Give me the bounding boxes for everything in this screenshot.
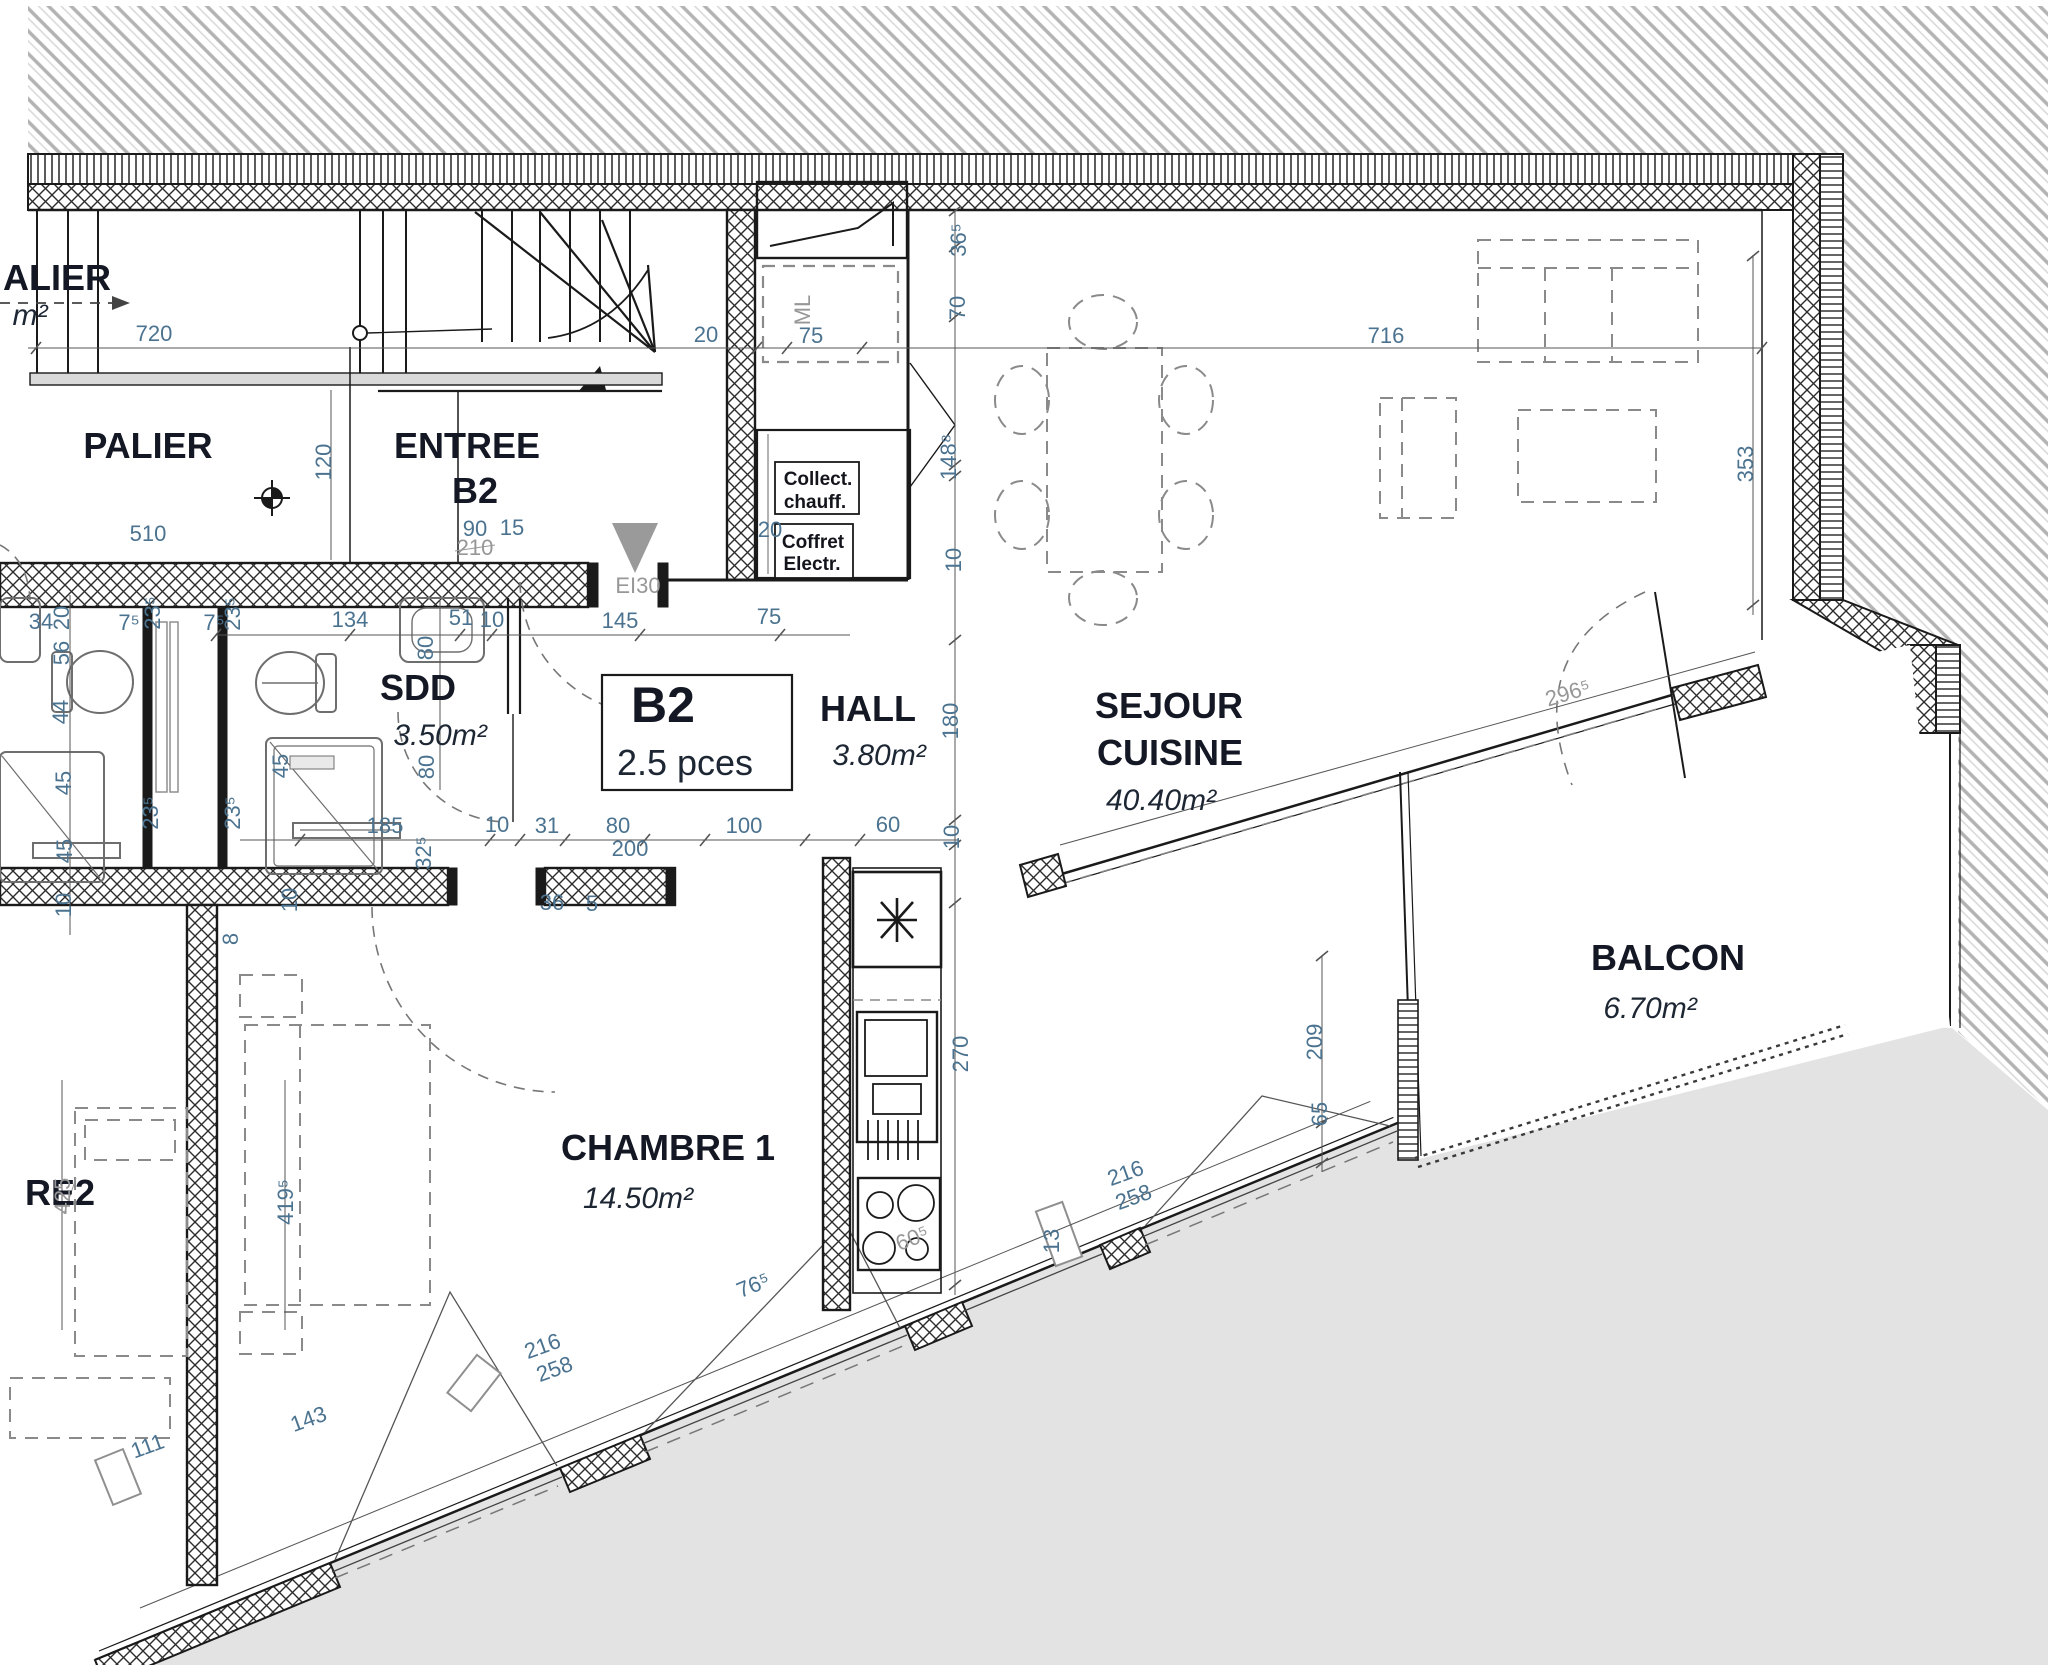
sejour-label-2: CUISINE: [1097, 732, 1243, 773]
balcon-area: 6.70m²: [1603, 992, 1697, 1025]
dim-185: 185: [367, 813, 404, 838]
dim-134: 134: [332, 607, 369, 632]
dim-765: 76⁵: [733, 1267, 774, 1303]
outside-ground: [95, 1025, 2048, 1665]
entree-unit: B2: [452, 470, 498, 511]
oven-vent-lines: [868, 1120, 918, 1160]
unit-box-pces: 2.5 pces: [617, 742, 753, 783]
dim-210: 210: [457, 535, 494, 560]
entree-label: ENTREE: [394, 425, 540, 466]
ml-label: ML: [790, 295, 815, 326]
adjacent-palier-area: m²: [13, 299, 49, 332]
hall-area: 3.80m²: [832, 739, 926, 772]
dim-13: 13: [1039, 1229, 1064, 1253]
dim-20-top: 20: [694, 322, 718, 347]
cab-collect-2: chauff.: [784, 492, 846, 513]
sejour-area: 40.40m²: [1106, 784, 1217, 817]
dim-120: 120: [311, 444, 336, 481]
dim-365: 36⁵: [946, 223, 971, 257]
dim-10-a: 10: [941, 548, 966, 572]
kitchen-appliances: [853, 868, 941, 1293]
dim-200: 200: [612, 836, 649, 861]
oven-unit: [857, 1012, 937, 1142]
dim-510: 510: [130, 521, 167, 546]
dim-80-b: 80: [414, 755, 439, 779]
dim-20-l: 20: [49, 606, 74, 630]
dim-235-d: 23⁵: [220, 796, 245, 830]
floor-plan-svg: ALIERm²720PALIER510120ENTREEB29015210EI3…: [0, 0, 2048, 1665]
dim-180: 180: [938, 703, 963, 740]
dim-36: 36: [540, 890, 564, 915]
unit-box-id: B2: [631, 677, 695, 733]
walking-line-arrow: [112, 296, 130, 310]
dim-209: 209: [1302, 1024, 1327, 1061]
sdd-label: SDD: [380, 667, 456, 708]
dim-270: 270: [948, 1036, 973, 1073]
sejour-label-1: SEJOUR: [1095, 685, 1243, 726]
dim-31: 31: [535, 813, 559, 838]
dim-56: 56: [49, 641, 74, 665]
floor-plan: ALIERm²720PALIER510120ENTREEB29015210EI3…: [0, 0, 2048, 1665]
dim-10-c: 10: [485, 812, 509, 837]
balcon-label: BALCON: [1591, 937, 1745, 978]
dim-60: 60: [876, 812, 900, 837]
dim-10-e: 10: [277, 888, 302, 912]
dim-75-ml: 75: [799, 323, 823, 348]
cooktop: [858, 1178, 940, 1270]
dim-70: 70: [945, 296, 970, 320]
dim-2965: 296⁵: [1542, 674, 1593, 711]
dim-75s-a: 7⁵: [118, 610, 139, 635]
newel-post: [353, 326, 367, 340]
dim-4195: 419⁵: [273, 1179, 298, 1225]
dim-10-l: 10: [51, 893, 76, 917]
palier-label: PALIER: [83, 425, 212, 466]
dim-10-d: 10: [939, 825, 964, 849]
hall-label: HALL: [820, 688, 916, 729]
dim-45-c: 45: [268, 754, 293, 778]
cab-coffret-2: Electr.: [783, 554, 840, 575]
dim-44: 44: [48, 700, 73, 724]
cab-collect-1: Collect.: [784, 469, 853, 490]
dim-720: 720: [136, 321, 173, 346]
dim-65: 65: [1307, 1102, 1332, 1126]
dim-325: 32⁵: [411, 836, 436, 870]
survey-point-icon: [254, 480, 290, 516]
dim-8: 8: [218, 933, 243, 945]
adjacent-palier-label: ALIER: [3, 257, 111, 298]
dim-45-b: 45: [52, 839, 77, 863]
dim-80-c: 80: [606, 813, 630, 838]
chambre1-label: CHAMBRE 1: [561, 1127, 775, 1168]
dim-145: 145: [602, 608, 639, 633]
dim-80-a: 80: [413, 636, 438, 660]
dim-716: 716: [1368, 323, 1405, 348]
sdd-area: 3.50m²: [393, 719, 487, 752]
dim-425: 425: [50, 1178, 75, 1215]
dim-10-b: 10: [480, 607, 504, 632]
dim-100: 100: [726, 813, 763, 838]
dim-353: 353: [1733, 446, 1758, 483]
dim-51: 51: [449, 605, 473, 630]
dim-75-b: 75: [757, 604, 781, 629]
dim-15: 15: [500, 515, 524, 540]
dim-75s-b: 7⁵: [203, 610, 224, 635]
dim-1488: 148⁸: [936, 434, 961, 480]
dim-20-b: 20: [758, 517, 782, 542]
landing-edge-strip: [30, 373, 662, 385]
chambre1-area: 14.50m²: [583, 1182, 694, 1215]
dim-235-a: 23⁵: [140, 596, 165, 630]
dim-5: 5: [586, 891, 598, 916]
dim-235-c: 23⁵: [138, 796, 163, 830]
sink-icon: [877, 898, 917, 942]
dim-45-a: 45: [51, 771, 76, 795]
dim-143: 143: [287, 1401, 330, 1437]
entrance-door-ei30-symbol: [612, 523, 658, 573]
dim-605: 60⁵: [892, 1220, 933, 1256]
top-hatch-band: [28, 6, 2048, 154]
dim-111: 111: [127, 1428, 167, 1463]
door-ei30: EI30: [615, 573, 660, 598]
cab-coffret-1: Coffret: [782, 532, 845, 553]
